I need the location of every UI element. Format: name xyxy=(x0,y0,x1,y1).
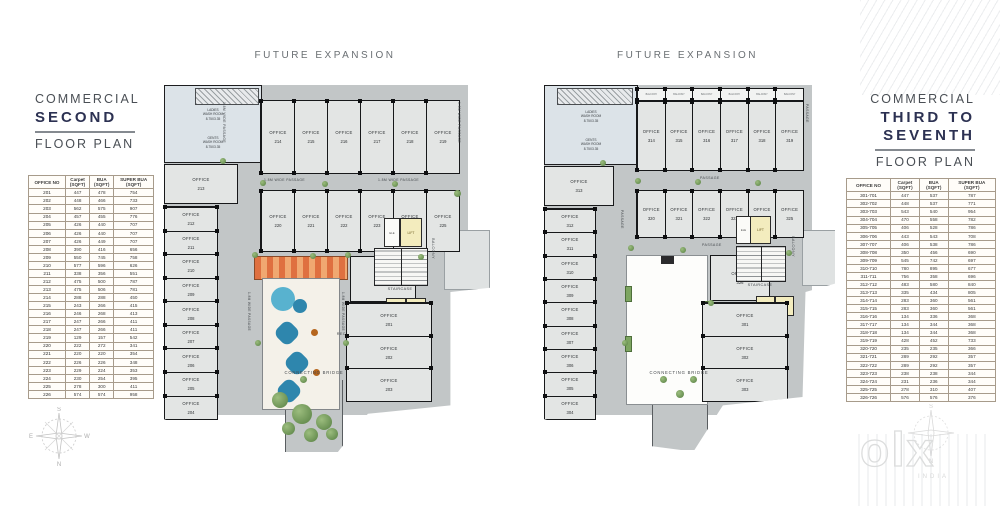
plant-dot xyxy=(343,340,349,346)
office-no-cell: 315-715 xyxy=(847,305,891,313)
carpet-cell: 406 xyxy=(891,224,920,232)
ladies-washroom-label: LADIESWASH ROOM8.75X3.35 xyxy=(165,108,261,121)
table-row: 205 426 440 707 xyxy=(29,221,154,229)
stair-hatch xyxy=(557,88,633,105)
bua-cell: 238 xyxy=(919,369,948,377)
table-row: 305-705 406 528 786 xyxy=(847,224,996,232)
carpet-cell: 220 xyxy=(65,350,89,358)
plant-dot xyxy=(755,180,761,186)
bua-cell: 235 xyxy=(919,345,948,353)
corner-texture-top-right xyxy=(860,0,1000,95)
office-no-cell: 213 xyxy=(29,286,66,294)
super-bua-cell: 395 xyxy=(114,374,154,382)
super-bua-cell: 551 xyxy=(114,269,154,277)
heading-floor-name: THIRD TO xyxy=(860,109,975,126)
table-row: 209 550 745 758 xyxy=(29,253,154,261)
washroom-block: LADIESWASH ROOM8.75X3.35 GENTSWASH ROOM8… xyxy=(164,85,262,163)
plant-dot xyxy=(600,160,606,166)
table-row: 303-703 543 540 954 xyxy=(847,208,996,216)
table-row: 321-721 289 292 357 xyxy=(847,353,996,361)
bua-cell: 266 xyxy=(90,318,114,326)
tree xyxy=(292,404,312,424)
super-bua-cell: 954 xyxy=(948,208,995,216)
bua-cell: 266 xyxy=(90,326,114,334)
office-no-cell: 223 xyxy=(29,366,66,374)
table-row: 302-702 448 537 771 xyxy=(847,200,996,208)
carpet-cell: 470 xyxy=(891,216,920,224)
plant-dot xyxy=(418,254,424,260)
office-no-cell: 309-709 xyxy=(847,256,891,264)
carpet-cell: 428 xyxy=(891,337,920,345)
bua-cell: 745 xyxy=(90,253,114,261)
plant-dot xyxy=(454,190,461,197)
table-row: 325-725 278 310 407 xyxy=(847,385,996,393)
ladies-washroom-label: LADIESWASH ROOM8.75X3.35 xyxy=(545,110,637,123)
bua-cell: 455 xyxy=(90,213,114,221)
gents-washroom-label: GENTSWASH ROOM8.75X3.35 xyxy=(545,138,637,151)
super-bua-cell: 840 xyxy=(948,281,995,289)
carpet-cell: 475 xyxy=(65,286,89,294)
super-bua-cell: 733 xyxy=(114,197,154,205)
office-no-cell: 311-711 xyxy=(847,272,891,280)
carpet-cell: 426 xyxy=(65,237,89,245)
office-no-cell: 303-703 xyxy=(847,208,891,216)
table-row: 318-718 134 344 368 xyxy=(847,329,996,337)
bua-cell: 538 xyxy=(919,240,948,248)
carpet-cell: 278 xyxy=(65,382,89,390)
office-room: OFFICE 307 xyxy=(545,326,595,349)
bua-cell: 360 xyxy=(919,305,948,313)
plant-dot xyxy=(322,181,328,187)
super-bua-cell: 656 xyxy=(114,245,154,253)
brochure-page: COMMERCIAL SECOND FLOOR PLAN OFFICE NOCa… xyxy=(0,0,1000,506)
office-room: OFFICE 308 xyxy=(545,302,595,325)
office-no-cell: 321-721 xyxy=(847,353,891,361)
office-room: OFFICE 320 xyxy=(637,191,665,237)
balcony-box: BALCONY xyxy=(720,89,748,100)
office-room: OFFICE 209 xyxy=(165,278,217,302)
carpet-cell: 226 xyxy=(65,358,89,366)
carpet-cell: 229 xyxy=(65,366,89,374)
bua-cell: 537 xyxy=(919,192,948,200)
bua-cell: 226 xyxy=(90,358,114,366)
carpet-cell: 406 xyxy=(891,240,920,248)
office-room: OFFICE 218 xyxy=(393,101,426,173)
heading-divider xyxy=(35,131,135,133)
super-bua-cell: 357 xyxy=(948,361,995,369)
office-no-cell: 201 xyxy=(29,189,66,197)
bua-cell: 500 xyxy=(90,278,114,286)
table-row: 216 246 268 413 xyxy=(29,310,154,318)
plant-dot xyxy=(676,390,684,398)
office-room: OFFICE 202 xyxy=(347,336,431,369)
bua-cell: 236 xyxy=(919,377,948,385)
plant-dot xyxy=(310,253,316,259)
bua-cell: 268 xyxy=(90,310,114,318)
office-room: OFFICE 309 xyxy=(545,279,595,302)
carpet-cell: 577 xyxy=(65,261,89,269)
office-no-cell: 205 xyxy=(29,221,66,229)
super-bua-cell: 696 xyxy=(948,272,995,280)
plant-dot xyxy=(220,158,226,164)
plant-dot xyxy=(345,252,351,258)
super-bua-cell: 805 xyxy=(948,289,995,297)
super-bua-cell: 787 xyxy=(114,278,154,286)
office-no-cell: 222 xyxy=(29,358,66,366)
office-room: OFFICE 316 xyxy=(692,102,720,170)
table-header-cell: Carpet(SQFT) xyxy=(65,176,89,189)
table-row: 206 426 440 707 xyxy=(29,229,154,237)
table-row: 221 220 220 354 xyxy=(29,350,154,358)
super-bua-cell: 907 xyxy=(114,205,154,213)
top-office-row: OFFICE 314 OFFICE 315 OFFICE 316 OFFICE … xyxy=(636,101,804,171)
table-header-cell: BUA(SQFT) xyxy=(919,179,948,192)
carpet-cell: 134 xyxy=(891,313,920,321)
carpet-cell: 550 xyxy=(65,253,89,261)
table-row: 319-719 428 452 733 xyxy=(847,337,996,345)
svg-text:E: E xyxy=(29,434,33,440)
tree xyxy=(282,422,295,435)
table-row: 316-716 134 336 368 xyxy=(847,313,996,321)
second-office-row: OFFICE 220 OFFICE 221 OFFICE 222 OFFICE … xyxy=(260,190,460,252)
super-bua-cell: 707 xyxy=(114,229,154,237)
office-no-cell: 208 xyxy=(29,245,66,253)
super-bua-cell: 707 xyxy=(114,237,154,245)
svg-text:N: N xyxy=(57,462,61,467)
bua-cell: 266 xyxy=(90,302,114,310)
bua-cell: 416 xyxy=(90,245,114,253)
table-row: 202 448 466 733 xyxy=(29,197,154,205)
carpet-cell: 426 xyxy=(65,229,89,237)
office-room: OFFICE 211 xyxy=(165,231,217,255)
office-no-cell: 211 xyxy=(29,269,66,277)
office-no-cell: 325-725 xyxy=(847,385,891,393)
second-floor-plan: FUTURE EXPANSION LADIESWASH ROOM8.75X3.3… xyxy=(160,40,490,460)
super-bua-cell: 353 xyxy=(114,366,154,374)
office-no-cell: 206 xyxy=(29,229,66,237)
carpet-cell: 447 xyxy=(891,192,920,200)
super-bua-cell: 787 xyxy=(948,192,995,200)
super-bua-cell: 786 xyxy=(948,224,995,232)
passage-label-vertical: 1.8M WIDE PASSAGE xyxy=(247,292,251,331)
office-room: OFFICE 216 xyxy=(327,101,360,173)
office-no-cell: 323-723 xyxy=(847,369,891,377)
office-no-cell: 214 xyxy=(29,294,66,302)
plant-dot xyxy=(260,180,266,186)
super-bua-cell: 786 xyxy=(948,240,995,248)
bua-cell: 466 xyxy=(90,197,114,205)
carpet-cell: 134 xyxy=(891,321,920,329)
table-row: 208 390 416 656 xyxy=(29,245,154,253)
lift: LIFT xyxy=(750,216,771,244)
heading-commercial: COMMERCIAL xyxy=(860,92,975,106)
plant-dot xyxy=(635,178,641,184)
carpet-cell: 222 xyxy=(65,342,89,350)
office-room: OFFICE 317 xyxy=(720,102,748,170)
office-room: OFFICE 217 xyxy=(360,101,393,173)
bua-cell: 456 xyxy=(919,248,948,256)
office-room: OFFICE 305 xyxy=(545,372,595,395)
connecting-bridge-label: CONNECTING BRIDGE xyxy=(258,370,370,375)
office-no-cell: 310-710 xyxy=(847,264,891,272)
table-row: 320-720 235 235 366 xyxy=(847,345,996,353)
table-row: 207 426 449 707 xyxy=(29,237,154,245)
table-header-cell: OFFICE NO xyxy=(29,176,66,189)
third-to-seventh-floor-plan: FUTURE EXPANSION LADIESWASH ROOM8.75X3.3… xyxy=(540,40,835,460)
office-room: OFFICE 321 xyxy=(665,191,693,237)
balcony-box: BALCONY xyxy=(775,89,803,100)
office-no-cell: 317-717 xyxy=(847,321,891,329)
office-room: OFFICE 215 xyxy=(294,101,327,173)
table-header-cell: SUPER BUA(SQFT) xyxy=(948,179,995,192)
office-no-cell: 207 xyxy=(29,237,66,245)
tree xyxy=(272,392,288,408)
carpet-cell: 247 xyxy=(65,318,89,326)
carpet-cell: 230 xyxy=(65,374,89,382)
courtyard-canopy xyxy=(254,256,348,280)
office-no-cell: 324-724 xyxy=(847,377,891,385)
office-room-213: OFFICE 213 xyxy=(164,164,238,204)
svg-text:W: W xyxy=(84,434,90,440)
office-no-cell: 306-706 xyxy=(847,232,891,240)
passage-label: PASSAGE xyxy=(702,243,722,247)
office-room: OFFICE 310 xyxy=(545,256,595,279)
office-no-cell: 221 xyxy=(29,350,66,358)
atrium-block xyxy=(661,256,674,264)
office-room: OFFICE 205 xyxy=(165,372,217,396)
plant-dot xyxy=(708,300,714,306)
carpet-cell: 238 xyxy=(891,369,920,377)
table-row: 326-726 576 576 376 xyxy=(847,393,996,401)
balcony-box: BALCONY xyxy=(665,89,693,100)
plant-dot xyxy=(622,340,628,346)
office-no-cell: 217 xyxy=(29,318,66,326)
super-bua-cell: 626 xyxy=(114,261,154,269)
olx-country-label: INDIA xyxy=(918,474,949,480)
carpet-cell: 574 xyxy=(65,390,89,398)
super-bua-cell: 707 xyxy=(114,221,154,229)
office-room: OFFICE 318 xyxy=(748,102,776,170)
office-room: OFFICE 219 xyxy=(426,101,459,173)
top-office-row: OFFICE 214 OFFICE 215 OFFICE 216 OFFICE … xyxy=(260,100,460,174)
bua-cell: 449 xyxy=(90,237,114,245)
office-room: OFFICE 201 xyxy=(347,303,431,336)
bua-cell: 558 xyxy=(919,216,948,224)
electrical-duct: ELE xyxy=(384,218,400,247)
table-header-row: OFFICE NOCarpet(SQFT)BUA(SQFT)SUPER BUA(… xyxy=(847,179,996,192)
super-bua-cell: 366 xyxy=(948,345,995,353)
future-expansion-label: FUTURE EXPANSION xyxy=(540,50,835,61)
balcony-box: BALCONY xyxy=(748,89,776,100)
plant-dot xyxy=(695,179,701,185)
heading-divider xyxy=(875,149,975,151)
office-room: OFFICE 315 xyxy=(665,102,693,170)
office-room: OFFICE 301 xyxy=(703,303,787,336)
bua-cell: 344 xyxy=(919,321,948,329)
table-row: 224 230 254 395 xyxy=(29,374,154,382)
bua-cell: 157 xyxy=(90,334,114,342)
carpet-cell: 475 xyxy=(65,278,89,286)
super-bua-cell: 450 xyxy=(114,294,154,302)
office-room: OFFICE 319 xyxy=(775,102,803,170)
super-bua-cell: 781 xyxy=(114,286,154,294)
super-bua-cell: 368 xyxy=(948,329,995,337)
office-no-cell: 320-720 xyxy=(847,345,891,353)
bua-cell: 528 xyxy=(919,224,948,232)
bua-cell: 292 xyxy=(919,361,948,369)
office-room: OFFICE 311 xyxy=(545,232,595,255)
plant-dot xyxy=(628,245,634,251)
table-row: 317-717 134 344 368 xyxy=(847,321,996,329)
bua-cell: 336 xyxy=(919,313,948,321)
office-room: OFFICE 204 xyxy=(165,396,217,420)
table-row: 219 129 157 542 xyxy=(29,334,154,342)
super-bua-cell: 341 xyxy=(114,342,154,350)
table-row: 203 562 575 907 xyxy=(29,205,154,213)
carpet-cell: 483 xyxy=(891,281,920,289)
super-bua-cell: 411 xyxy=(114,326,154,334)
future-expansion-label: FUTURE EXPANSION xyxy=(160,50,490,61)
carpet-cell: 278 xyxy=(891,385,920,393)
table-row: 212 475 500 787 xyxy=(29,278,154,286)
super-bua-cell: 344 xyxy=(948,369,995,377)
olx-logo: olx xyxy=(860,423,935,478)
passage-label-vertical: 1.8M WIDE PASSAGE xyxy=(222,102,226,143)
table-header-cell: OFFICE NO xyxy=(847,179,891,192)
table-row: 323-723 238 238 344 xyxy=(847,369,996,377)
carpet-cell: 283 xyxy=(891,297,920,305)
bua-cell: 310 xyxy=(919,385,948,393)
table-row: 304-704 470 558 782 xyxy=(847,216,996,224)
bua-cell: 540 xyxy=(919,208,948,216)
office-room: OFFICE 312 xyxy=(545,209,595,232)
table-row: 210 577 596 626 xyxy=(29,261,154,269)
table-row: 310-710 780 895 677 xyxy=(847,264,996,272)
bua-cell: 288 xyxy=(90,294,114,302)
compass-rose-icon: S N E W xyxy=(28,405,90,467)
tree xyxy=(326,428,338,440)
table-row: 309-709 545 742 697 xyxy=(847,256,996,264)
table-header-row: OFFICE NOCarpet(SQFT)BUA(SQFT)SUPER BUA(… xyxy=(29,176,154,189)
carpet-cell: 335 xyxy=(891,289,920,297)
bua-cell: 452 xyxy=(919,337,948,345)
office-no-cell: 307-707 xyxy=(847,240,891,248)
super-bua-cell: 677 xyxy=(948,264,995,272)
left-plan-heading: COMMERCIAL SECOND FLOOR PLAN xyxy=(35,92,145,151)
table-row: 217 247 266 411 xyxy=(29,318,154,326)
balcony-slab xyxy=(802,230,837,286)
super-bua-cell: 561 xyxy=(948,305,995,313)
super-bua-cell: 697 xyxy=(948,256,995,264)
passage-label-vertical: PASSAGE xyxy=(805,104,809,123)
svg-text:S: S xyxy=(929,404,933,410)
office-room: OFFICE 212 xyxy=(165,207,217,231)
balcony-label: BALCONY xyxy=(431,238,435,259)
staircase xyxy=(736,246,786,282)
heading-floor-plan: FLOOR PLAN xyxy=(860,155,975,169)
bua-cell: 356 xyxy=(90,269,114,277)
office-no-cell: 322-722 xyxy=(847,361,891,369)
carpet-cell: 289 xyxy=(891,353,920,361)
office-no-cell: 305-705 xyxy=(847,224,891,232)
office-no-cell: 209 xyxy=(29,253,66,261)
table-row: 226 574 574 958 xyxy=(29,390,154,398)
bua-cell: 580 xyxy=(919,281,948,289)
plant-dot xyxy=(392,181,398,187)
office-room: OFFICE 304 xyxy=(545,396,595,419)
office-no-cell: 216 xyxy=(29,310,66,318)
heading-floor-name: SEVENTH xyxy=(860,127,975,144)
plant-dot xyxy=(786,250,792,256)
carpet-cell: 283 xyxy=(891,305,920,313)
office-no-cell: 319-719 xyxy=(847,337,891,345)
connecting-bridge-label: CONNECTING BRIDGE xyxy=(624,370,734,375)
carpet-cell: 780 xyxy=(891,264,920,272)
super-bua-cell: 561 xyxy=(948,297,995,305)
bua-cell: 440 xyxy=(90,221,114,229)
table-row: 315-715 283 360 561 xyxy=(847,305,996,313)
office-room: OFFICE 302 xyxy=(703,336,787,369)
table-header-cell: Carpet(SQFT) xyxy=(891,179,920,192)
super-bua-cell: 357 xyxy=(948,353,995,361)
office-room: OFFICE 207 xyxy=(165,325,217,349)
office-room: OFFICE 325 xyxy=(775,191,803,237)
carpet-cell: 350 xyxy=(891,248,920,256)
carpet-cell: 545 xyxy=(891,256,920,264)
office-no-cell: 313-713 xyxy=(847,289,891,297)
super-bua-cell: 958 xyxy=(114,390,154,398)
carpet-cell: 231 xyxy=(891,377,920,385)
passage-label: 1.8M WIDE PASSAGE xyxy=(264,178,305,182)
office-no-cell: 202 xyxy=(29,197,66,205)
carpet-cell: 448 xyxy=(65,197,89,205)
office-room: OFFICE 214 xyxy=(261,101,294,173)
table-row: 306-706 443 543 708 xyxy=(847,232,996,240)
table-row: 223 229 224 353 xyxy=(29,366,154,374)
bua-cell: 478 xyxy=(90,189,114,197)
stair-hatch xyxy=(195,88,259,105)
table-row: 301-701 447 537 787 xyxy=(847,192,996,200)
super-bua-cell: 771 xyxy=(948,200,995,208)
super-bua-cell: 733 xyxy=(948,337,995,345)
carpet-cell: 448 xyxy=(891,200,920,208)
tree xyxy=(304,428,318,442)
office-no-cell: 312-712 xyxy=(847,281,891,289)
office-room: OFFICE 306 xyxy=(545,349,595,372)
office-no-cell: 224 xyxy=(29,374,66,382)
office-room: OFFICE 222 xyxy=(327,191,360,251)
office-room-313: OFFICE 313 xyxy=(544,166,614,206)
office-no-cell: 220 xyxy=(29,342,66,350)
courtyard-floor xyxy=(262,278,340,410)
plant-dot xyxy=(660,376,667,383)
bua-cell: 344 xyxy=(919,329,948,337)
carpet-cell: 576 xyxy=(891,393,920,401)
electrical-duct: ELE xyxy=(736,216,751,244)
carpet-cell: 457 xyxy=(65,213,89,221)
office-no-cell: 318-718 xyxy=(847,329,891,337)
passage-label-vertical: 1.8M WIDE PASSAGE xyxy=(457,102,461,143)
table-row: 204 457 455 776 xyxy=(29,213,154,221)
super-bua-cell: 776 xyxy=(114,213,154,221)
bua-cell: 292 xyxy=(919,353,948,361)
staircase-label: STAIRCASE xyxy=(736,283,784,287)
water-feature xyxy=(271,287,295,311)
office-no-cell: 308-708 xyxy=(847,248,891,256)
super-bua-cell: 344 xyxy=(948,377,995,385)
balcony-box: BALCONY xyxy=(637,89,665,100)
office-room: OFFICE 208 xyxy=(165,301,217,325)
